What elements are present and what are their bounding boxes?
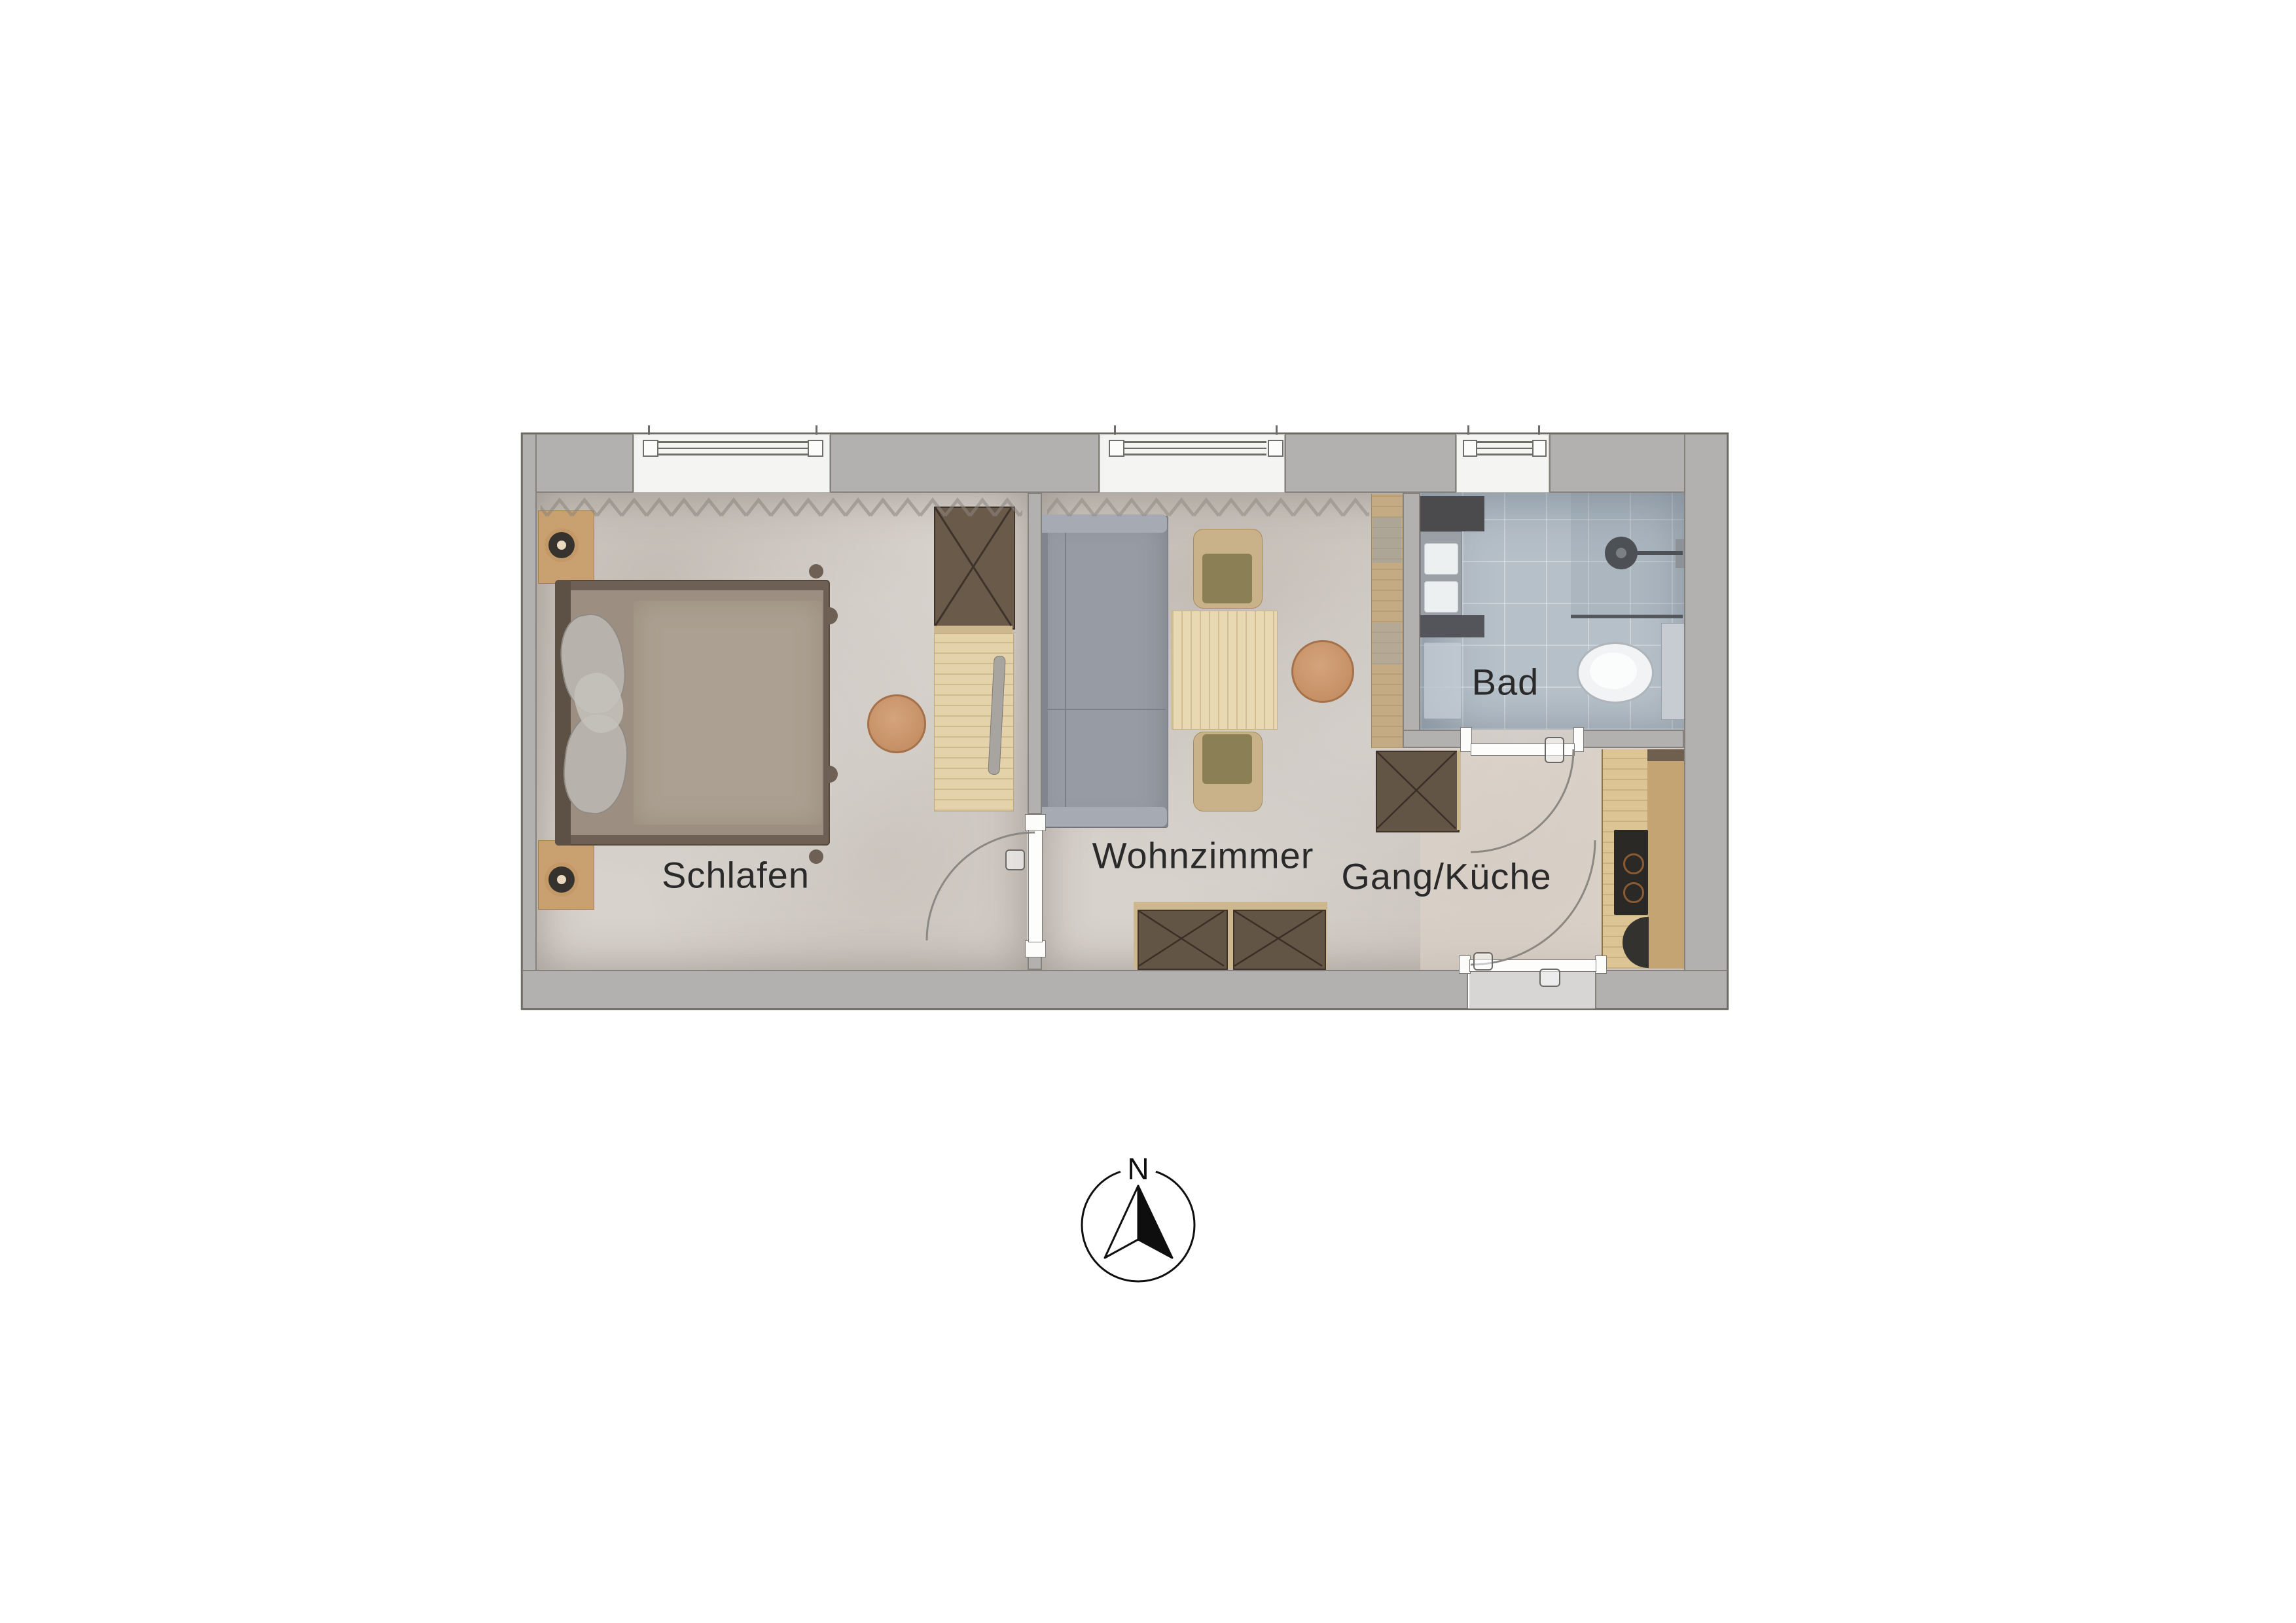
door-schlafen-jamb-bottom bbox=[1025, 940, 1046, 957]
kitchen-counter-dark-top bbox=[1647, 749, 1684, 761]
wall-right bbox=[1684, 433, 1728, 1009]
bed-knob-top bbox=[809, 564, 823, 579]
shower-head-dot bbox=[1616, 548, 1626, 558]
cabinet-a bbox=[1138, 910, 1228, 970]
wall-bottom-1 bbox=[522, 970, 1468, 1009]
wardrobe bbox=[934, 507, 1015, 630]
door-schlafen-jamb-top bbox=[1025, 814, 1046, 831]
lamp-bottom-dot bbox=[557, 875, 566, 884]
window-bad-block-right bbox=[1532, 440, 1547, 457]
towel-2 bbox=[1424, 581, 1458, 613]
room-label-wohnzimmer: Wohnzimmer bbox=[1092, 834, 1314, 877]
window-wohnzimmer-tick-right bbox=[1276, 425, 1278, 435]
chair-bottom-seat bbox=[1202, 734, 1252, 784]
window-schlafen-tick-left bbox=[648, 425, 650, 435]
floor-plan-canvas: Schlafen Wohnzimmer Gang/Küche Bad N bbox=[0, 0, 2296, 1623]
door-entrance-handle-2 bbox=[1539, 969, 1560, 987]
vanity-shelf bbox=[1420, 615, 1484, 637]
window-bad-tick-left bbox=[1467, 425, 1469, 435]
wall-left bbox=[522, 433, 537, 1009]
window-schlafen-block-left bbox=[643, 440, 658, 457]
lamp-top-dot bbox=[557, 541, 566, 550]
kitchen-counter-back bbox=[1647, 749, 1684, 969]
window-bad-block-left bbox=[1463, 440, 1477, 457]
north-arrow-left bbox=[1105, 1186, 1138, 1258]
vanity-counter bbox=[1420, 496, 1484, 531]
window-wohnzimmer-tick-left bbox=[1114, 425, 1116, 435]
wall-bad-left bbox=[1403, 493, 1420, 748]
window-wohnzimmer-frame bbox=[1119, 441, 1266, 455]
gang-cabinet bbox=[1376, 751, 1460, 832]
wall-top-1 bbox=[522, 433, 634, 493]
wall-bottom-2 bbox=[1595, 970, 1728, 1009]
door-entrance-jamb-right bbox=[1595, 955, 1607, 974]
bed-duvet bbox=[634, 601, 822, 825]
sofa-cushion-line-v bbox=[1065, 524, 1066, 819]
window-bad-tick-right bbox=[1538, 425, 1540, 435]
door-entrance-threshold bbox=[1469, 970, 1595, 1008]
toilet-bowl-inner bbox=[1590, 652, 1637, 689]
window-schlafen-block-right bbox=[808, 440, 823, 457]
cabinet-b bbox=[1233, 910, 1326, 970]
tall-shelf-item-2 bbox=[1372, 623, 1401, 665]
tall-shelf-item-1 bbox=[1372, 517, 1401, 563]
dining-table bbox=[1172, 611, 1278, 730]
room-label-schlafen: Schlafen bbox=[662, 854, 810, 897]
door-bad-handle bbox=[1545, 737, 1564, 763]
bath-mat bbox=[1424, 643, 1461, 719]
north-arrow-right bbox=[1138, 1186, 1172, 1258]
stool bbox=[867, 694, 926, 753]
compass-north-label: N bbox=[1127, 1151, 1149, 1186]
wall-top-2 bbox=[830, 433, 1100, 493]
window-schlafen-frame bbox=[653, 441, 810, 455]
window-bad-frame bbox=[1473, 441, 1534, 455]
side-table bbox=[1291, 640, 1354, 703]
door-schlafen-leaf bbox=[1028, 830, 1043, 942]
toilet-cistern bbox=[1661, 623, 1685, 720]
shower-wall-fixture bbox=[1676, 539, 1685, 568]
wall-partition-schlafen bbox=[1028, 493, 1042, 814]
door-entrance-handle-1 bbox=[1473, 952, 1493, 971]
room-label-gang-kueche: Gang/Küche bbox=[1341, 855, 1551, 898]
chair-top-seat bbox=[1202, 554, 1252, 603]
burner-2 bbox=[1623, 882, 1644, 903]
wall-partition-schlafen-low bbox=[1028, 956, 1042, 970]
bed-knob-bottom bbox=[809, 849, 823, 864]
door-schlafen-handle bbox=[1005, 849, 1025, 870]
sofa-armrest-top bbox=[1036, 514, 1167, 533]
wall-bad-bottom-1 bbox=[1403, 730, 1469, 748]
wall-bad-bottom-2 bbox=[1573, 730, 1684, 748]
window-wohnzimmer-block-left bbox=[1109, 440, 1124, 457]
sofa-armrest-bottom bbox=[1036, 807, 1167, 827]
burner-1 bbox=[1623, 853, 1644, 874]
window-wohnzimmer-block-right bbox=[1268, 440, 1283, 457]
wardrobe-trim bbox=[934, 626, 1013, 633]
sofa-cushion-line-h bbox=[1048, 709, 1166, 710]
window-schlafen-tick-right bbox=[816, 425, 817, 435]
gang-cabinet-trim bbox=[1457, 751, 1461, 830]
towel-1 bbox=[1424, 543, 1458, 575]
door-bad-jamb-right bbox=[1573, 727, 1584, 752]
sofa bbox=[1031, 516, 1168, 828]
room-label-bad: Bad bbox=[1472, 661, 1539, 704]
bed-headboard bbox=[555, 580, 571, 846]
wall-top-3 bbox=[1285, 433, 1456, 493]
